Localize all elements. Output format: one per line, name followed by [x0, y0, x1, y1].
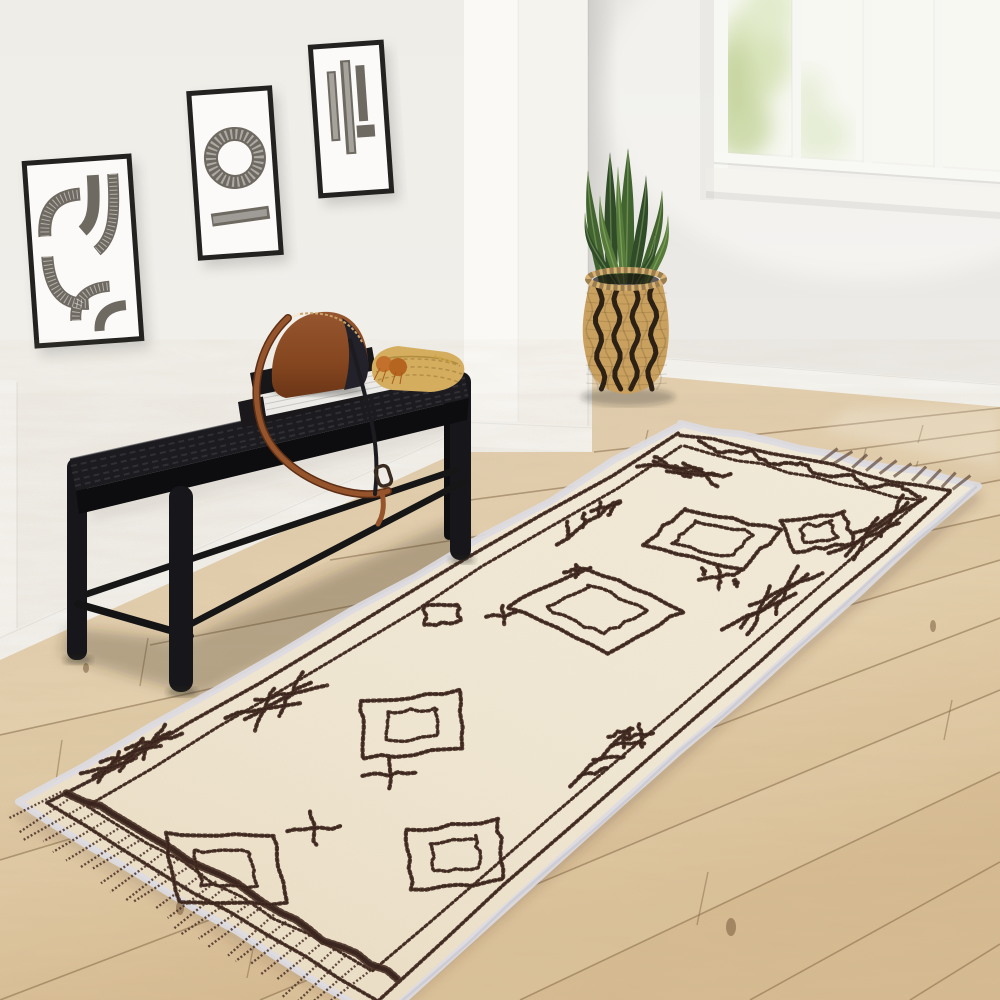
- scene-svg: [0, 0, 1000, 1000]
- frame-mat: [27, 159, 139, 344]
- plank-knot: [930, 620, 936, 632]
- entryway-photo: [0, 0, 1000, 1000]
- bench-leg-near-left: [169, 486, 193, 692]
- plank-knot: [83, 663, 89, 673]
- leg-contact-shadow-1: [64, 656, 92, 665]
- wall-corner-strip: [0, 380, 17, 652]
- column: [458, 0, 594, 452]
- leg-contact-shadow-3: [449, 556, 475, 564]
- window-jamb: [714, 0, 728, 176]
- picture-frame-left: [22, 153, 150, 357]
- picture-frame-right: [308, 39, 400, 206]
- plank-knot: [726, 918, 736, 936]
- jamb-shadow: [700, 0, 714, 200]
- window-mullion-2: [863, 0, 872, 163]
- leg-contact-shadow-2: [167, 687, 197, 697]
- window: [700, 0, 1000, 219]
- window-mullion-3: [934, 0, 943, 168]
- chevron-basket: [583, 270, 669, 394]
- picture-frame-middle: [186, 85, 289, 269]
- frame-mat: [192, 91, 279, 256]
- column-left-face: [464, 0, 518, 422]
- tassel-pom-2: [389, 358, 407, 376]
- window-mullion-1: [792, 0, 801, 158]
